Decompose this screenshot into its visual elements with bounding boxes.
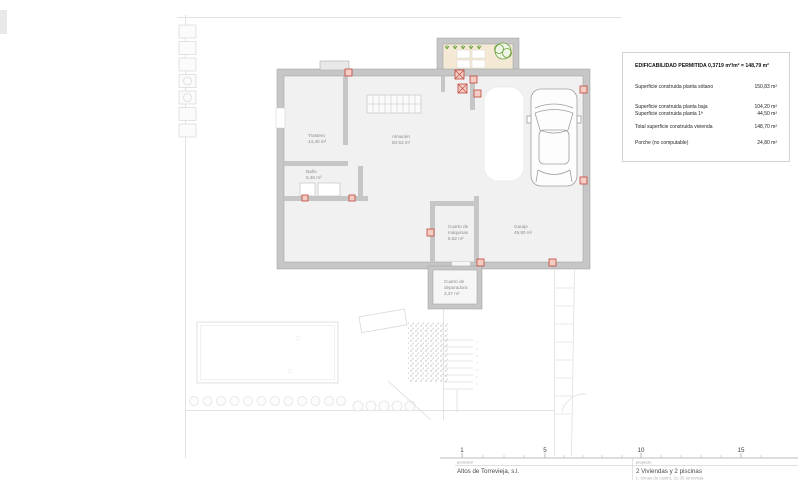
column-marker xyxy=(477,259,484,266)
legend-value: 24,80 m² xyxy=(757,141,777,147)
legend-title: EDIFICABILIDAD PERMITIDA 0,3719 m²/m² = … xyxy=(635,64,777,70)
scale-number: 15 xyxy=(738,447,745,454)
scale-number: 10 xyxy=(638,447,645,454)
car-mirror xyxy=(527,116,531,123)
legend-label: Superficie construida planta 1ª xyxy=(635,112,703,118)
svg-text:49,80 m²: 49,80 m² xyxy=(514,230,533,235)
stair-step-numbers: 7 6 5 4 3 2 1 xyxy=(476,340,478,386)
column-marker xyxy=(470,76,477,83)
driveway-ramp xyxy=(554,270,586,456)
legend-row-baja: Superficie construida planta baja 104,20… xyxy=(635,105,777,111)
floor-plan-canvas: 7 6 5 4 3 2 1 xyxy=(0,0,800,480)
legend-value: 44,50 m² xyxy=(757,112,777,118)
window-opening xyxy=(276,108,285,128)
svg-text:5,48 m²: 5,48 m² xyxy=(306,175,322,180)
stair-number: 5 xyxy=(476,354,478,358)
bush-icon xyxy=(495,43,512,59)
column-marker xyxy=(580,177,587,184)
scale-numbers: 1 5 10 15 xyxy=(460,447,745,454)
column-marker xyxy=(427,229,434,236)
legend-row-sotano: Superficie construida planta sótano 150,… xyxy=(635,85,777,91)
room-label-almacen: Almacén 50,53 m² xyxy=(392,134,411,145)
promoter-name: Altos de Torrevieja, s.l. xyxy=(457,468,519,475)
bathroom-fixtures xyxy=(300,183,340,196)
column-marker xyxy=(580,86,587,93)
legend-label: Superficie construida planta sótano xyxy=(635,85,713,91)
legend-label: Porche (no computable) xyxy=(635,141,688,147)
legend-value: 104,20 m² xyxy=(754,105,777,111)
stair-number: 6 xyxy=(476,347,478,351)
svg-text:depuradora: depuradora xyxy=(444,285,468,290)
svg-text:3,37 m²: 3,37 m² xyxy=(444,291,460,296)
title-block: promotor Altos de Torrevieja, s.l. proye… xyxy=(455,458,798,480)
stepping-stones xyxy=(190,397,416,412)
legend-label: Total superficie construida vivienda xyxy=(635,125,713,131)
door-swing-arc xyxy=(562,394,586,412)
legend-row-porche: Porche (no computable) 24,80 m² xyxy=(635,141,777,147)
svg-text:6,52 m²: 6,52 m² xyxy=(448,236,464,241)
stair-number: 3 xyxy=(476,368,478,372)
legend-row-primera: Superficie construida planta 1ª 44,50 m² xyxy=(635,112,777,118)
stair-number: 4 xyxy=(476,361,478,365)
legend-label: Superficie construida planta baja xyxy=(635,105,708,111)
margin-tab xyxy=(0,10,7,34)
svg-text:Cuarto de: Cuarto de xyxy=(448,224,469,229)
car-silhouette xyxy=(484,87,524,181)
svg-text:máquinas: máquinas xyxy=(448,230,469,235)
svg-text:Trastero: Trastero xyxy=(308,133,325,138)
staircase xyxy=(367,95,421,113)
column-marker-hatched xyxy=(458,84,467,93)
car-top-view xyxy=(527,89,581,186)
project-label: proyecto xyxy=(636,460,652,465)
pool xyxy=(197,322,338,383)
legend-value: 148,70 m² xyxy=(754,125,777,131)
retaining-wall-cells xyxy=(179,25,196,137)
buildability-legend: EDIFICABILIDAD PERMITIDA 0,3719 m²/m² = … xyxy=(622,52,790,162)
scale-number: 5 xyxy=(543,447,547,454)
garden-diagonal-line xyxy=(388,381,431,420)
scale-number: 1 xyxy=(460,447,464,454)
svg-text:50,53 m²: 50,53 m² xyxy=(392,140,411,145)
garden-bench xyxy=(359,309,407,333)
project-name: 2 Viviendas y 2 piscinas xyxy=(636,468,702,475)
column-marker xyxy=(349,195,355,201)
room-label-trastero: Trastero 14,40 m² xyxy=(308,133,327,144)
scale-minor-ticks xyxy=(483,455,761,458)
svg-text:14,40 m²: 14,40 m² xyxy=(308,139,327,144)
column-marker xyxy=(302,195,308,201)
column-marker xyxy=(474,90,481,97)
building: Trastero 14,40 m² Almacén 50,53 m² Baño … xyxy=(276,38,590,309)
vegetation-patch xyxy=(408,322,448,382)
legend-row-total: Total superficie construida vivienda 148… xyxy=(635,125,777,131)
car-mirror xyxy=(577,116,581,123)
legend-value: 150,83 m² xyxy=(754,85,777,91)
column-marker-hatched xyxy=(455,70,464,79)
project-address: c. tomas de castro, 31-35 torrevieja xyxy=(636,476,704,481)
stair-number: 1 xyxy=(476,382,478,386)
stair-number: 2 xyxy=(476,375,478,379)
svg-text:Almacén: Almacén xyxy=(392,134,410,139)
svg-text:Baño: Baño xyxy=(306,169,317,174)
cell-circle xyxy=(184,94,192,102)
column-marker xyxy=(549,259,556,266)
svg-text:Garaje: Garaje xyxy=(514,224,528,229)
column-marker xyxy=(345,69,352,76)
svg-text:Cuarto de: Cuarto de xyxy=(444,279,465,284)
cell-circle xyxy=(184,77,192,85)
stair-number: 7 xyxy=(476,340,478,344)
promoter-label: promotor xyxy=(457,460,474,465)
